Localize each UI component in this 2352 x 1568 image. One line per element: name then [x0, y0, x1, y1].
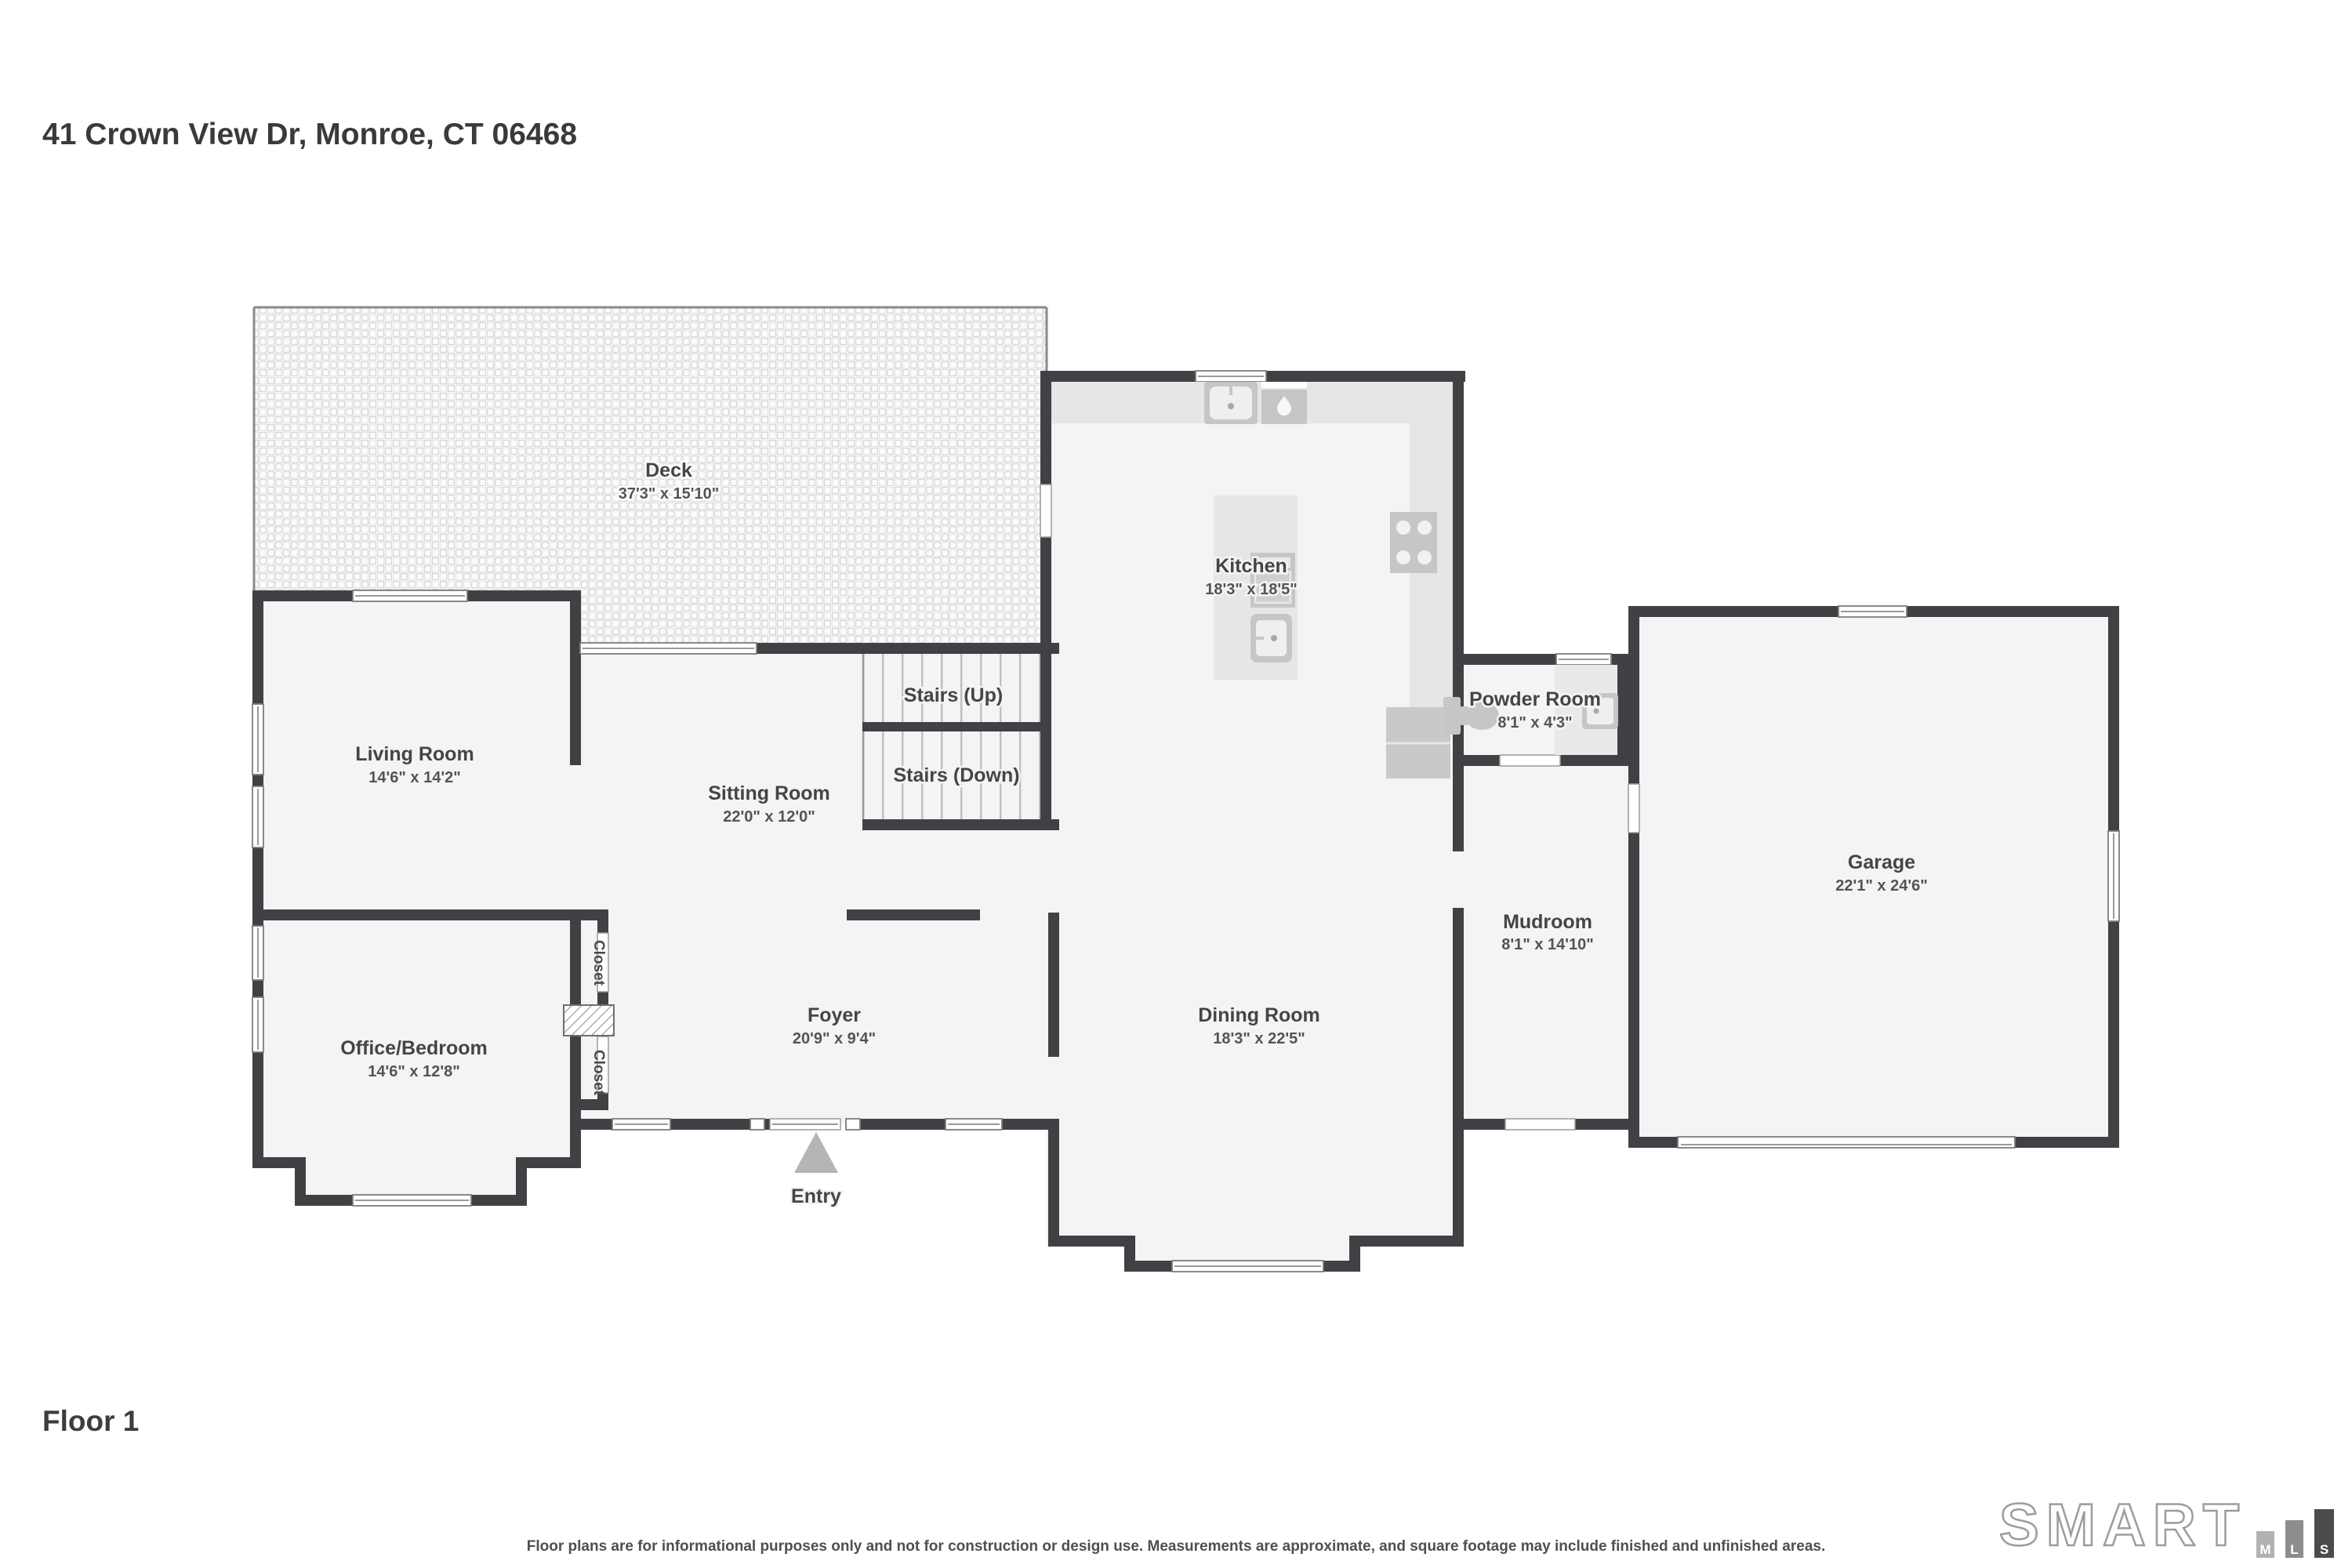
- floorplan-page: { "page": { "title": "41 Crown View Dr, …: [0, 0, 2352, 1568]
- svg-text:Kitchen: Kitchen: [1215, 555, 1287, 577]
- window: [252, 786, 263, 848]
- logo-bar-l: L: [2285, 1520, 2303, 1558]
- svg-text:Living Room: Living Room: [355, 743, 474, 765]
- svg-text:Closet: Closet: [590, 940, 607, 986]
- window: [1172, 1261, 1323, 1272]
- svg-text:M: M: [2259, 1542, 2270, 1557]
- svg-text:20'9" x 9'4": 20'9" x 9'4": [793, 1030, 876, 1047]
- sink-icon: [1204, 382, 1258, 424]
- svg-text:Deck: Deck: [645, 459, 692, 481]
- svg-text:Entry: Entry: [791, 1185, 841, 1207]
- room-label-living-room: Living Room 14'6" x 14'2": [355, 743, 474, 786]
- stove-icon: [1390, 512, 1437, 573]
- svg-text:8'1" x 14'10": 8'1" x 14'10": [1501, 936, 1593, 953]
- room-label-stairs-down: Stairs (Down): [893, 764, 1019, 786]
- stairs: [863, 654, 1040, 819]
- svg-text:Office/Bedroom: Office/Bedroom: [340, 1037, 488, 1059]
- floorplan-drawing: Deck 37'3" x 15'10" Kitchen 18'3" x 18'5…: [0, 0, 2352, 1568]
- svg-text:L: L: [2290, 1542, 2298, 1557]
- window: [1556, 654, 1611, 665]
- window: [252, 926, 263, 980]
- room-label-dining-room: Dining Room 18'3" x 22'5": [1198, 1004, 1320, 1047]
- svg-text:18'3" x 22'5": 18'3" x 22'5": [1213, 1030, 1305, 1047]
- refrigerator-icon: [1386, 707, 1450, 779]
- sidelight: [750, 1119, 764, 1130]
- svg-text:14'6" x 12'8": 14'6" x 12'8": [368, 1063, 459, 1080]
- room-label-sitting-room: Sitting Room 22'0" x 12'0": [708, 782, 830, 826]
- window: [1196, 371, 1266, 382]
- svg-text:22'0" x 12'0": 22'0" x 12'0": [723, 808, 815, 826]
- svg-text:Stairs (Up): Stairs (Up): [904, 684, 1003, 706]
- logo-bar-s: S: [2314, 1509, 2334, 1558]
- window: [946, 1119, 1002, 1130]
- window: [580, 643, 757, 654]
- window: [612, 1119, 670, 1130]
- sidelight: [846, 1119, 860, 1130]
- door-opening: [1500, 755, 1560, 766]
- door-opening: [1628, 784, 1639, 833]
- svg-text:14'6" x 14'2": 14'6" x 14'2": [368, 769, 460, 786]
- logo-wordmark: SMART: [1999, 1494, 2246, 1559]
- island-sink-icon: [1250, 614, 1292, 662]
- slider-door: [353, 590, 467, 601]
- svg-text:22'1" x 24'6": 22'1" x 24'6": [1835, 877, 1927, 895]
- svg-text:37'3" x 15'10": 37'3" x 15'10": [619, 485, 720, 503]
- svg-text:Stairs (Down): Stairs (Down): [893, 764, 1019, 786]
- entry-label: Entry: [791, 1185, 841, 1207]
- svg-text:Sitting Room: Sitting Room: [708, 782, 830, 804]
- passage-opening: [1453, 851, 1464, 908]
- svg-text:S: S: [2320, 1542, 2328, 1557]
- window: [1838, 606, 1907, 617]
- door-opening: [1040, 485, 1051, 537]
- floor-label: Floor 1: [42, 1405, 139, 1438]
- room-label-garage: Garage 22'1" x 24'6": [1835, 851, 1927, 895]
- room-label-closet-lower: Closet: [590, 1050, 607, 1096]
- window: [353, 1195, 471, 1206]
- svg-text:Mudroom: Mudroom: [1503, 911, 1592, 933]
- svg-text:8'1" x 4'3": 8'1" x 4'3": [1497, 714, 1572, 731]
- logo-bar-m: M: [2256, 1531, 2274, 1558]
- svg-text:Dining Room: Dining Room: [1198, 1004, 1320, 1026]
- entry-door: [770, 1119, 840, 1130]
- svg-text:Foyer: Foyer: [808, 1004, 861, 1026]
- window: [252, 997, 263, 1052]
- smartmls-logo: SMART M L S: [1998, 1494, 2343, 1565]
- window: [252, 704, 263, 775]
- room-label-closet-upper: Closet: [590, 940, 607, 986]
- hatched-door: [564, 1005, 614, 1036]
- svg-text:Closet: Closet: [590, 1050, 607, 1096]
- door-opening: [1505, 1119, 1575, 1130]
- svg-text:18'3" x 18'5": 18'3" x 18'5": [1205, 581, 1297, 598]
- room-label-stairs-up: Stairs (Up): [904, 684, 1003, 706]
- entry-arrow-icon: [794, 1132, 838, 1173]
- garage-door: [1678, 1137, 2015, 1148]
- svg-text:Powder Room: Powder Room: [1469, 688, 1601, 710]
- svg-text:Garage: Garage: [1848, 851, 1915, 873]
- room-label-kitchen: Kitchen 18'3" x 18'5": [1205, 555, 1297, 598]
- window: [2108, 831, 2119, 921]
- room-label-mudroom: Mudroom 8'1" x 14'10": [1501, 911, 1593, 953]
